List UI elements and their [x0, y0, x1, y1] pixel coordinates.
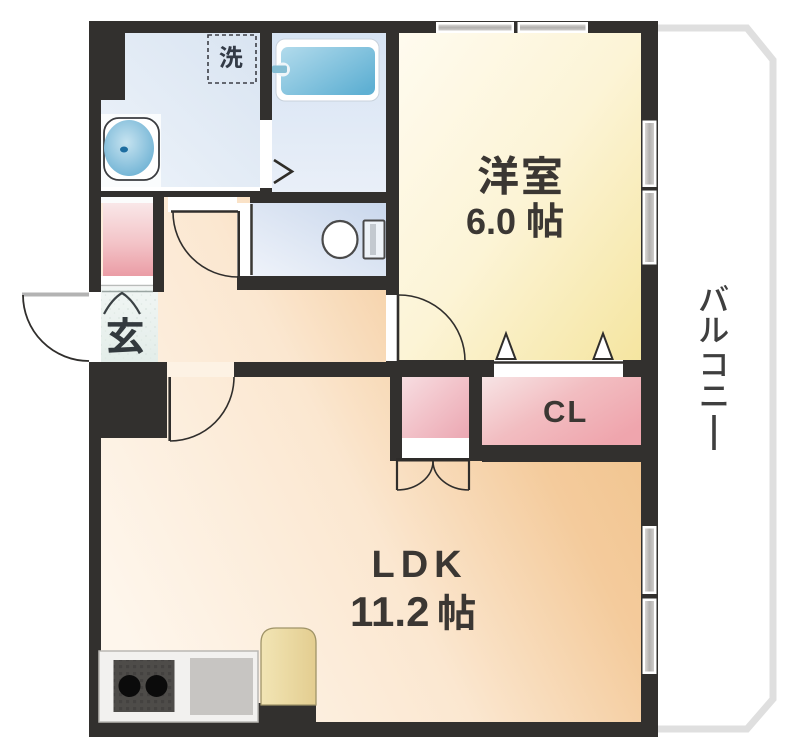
svg-text:11.2: 11.2	[350, 588, 429, 635]
svg-text:LDK: LDK	[372, 544, 468, 586]
svg-text:CL: CL	[543, 394, 588, 429]
svg-text:6.0: 6.0	[466, 201, 516, 242]
